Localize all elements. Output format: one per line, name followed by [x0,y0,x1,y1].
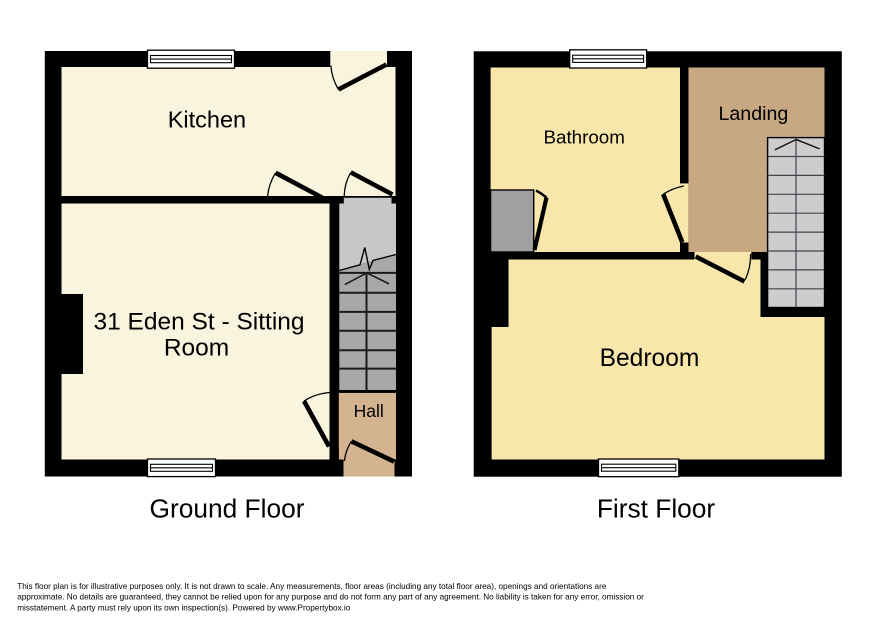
svg-text:approximate. No details are gu: approximate. No details are guaranteed, … [17,593,644,602]
svg-text:Bathroom: Bathroom [543,127,624,148]
svg-text:First Floor: First Floor [597,493,716,523]
svg-text:Room: Room [164,335,229,362]
svg-text:Landing: Landing [719,103,789,125]
svg-text:misstatement. A party must rel: misstatement. A party must rely upon its… [17,603,351,612]
svg-text:Bedroom: Bedroom [600,345,700,372]
svg-text:31 Eden St - Sitting: 31 Eden St - Sitting [93,309,304,336]
svg-text:Kitchen: Kitchen [168,107,246,133]
svg-text:Ground Floor: Ground Floor [150,494,305,524]
svg-text:This floor plan is for illustr: This floor plan is for illustrative purp… [17,582,607,591]
svg-text:Hall: Hall [354,401,384,421]
